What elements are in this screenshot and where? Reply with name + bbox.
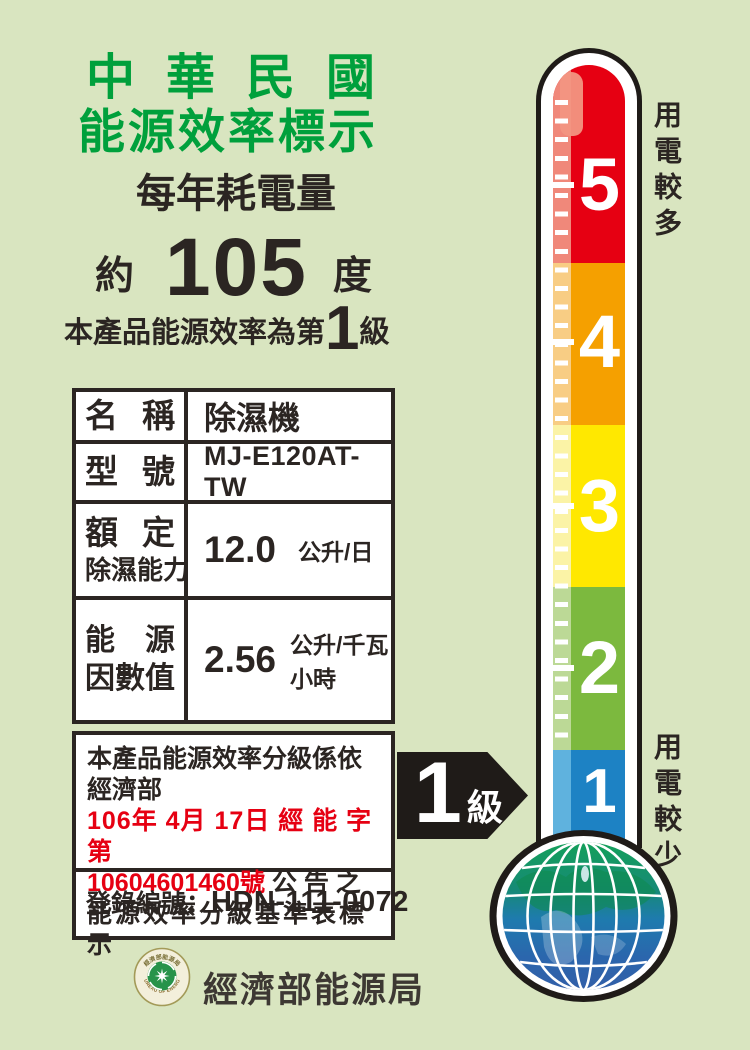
registration-label: 登錄編號： [86, 884, 211, 920]
label-char: 除 [85, 553, 111, 587]
row-name-label: 名 稱 [76, 392, 188, 440]
label-char: 號 [142, 452, 175, 492]
label-char: 型 [85, 452, 118, 492]
major-tick [546, 665, 574, 671]
label-char: 因 [85, 660, 115, 698]
row-capacity-label: 額 定 除 濕 能 力 [76, 504, 188, 596]
spec-table: 名 稱 除濕機 型 號 MJ-E120AT-TW 額 定 除 濕 [72, 388, 395, 724]
level-4-number: 4 [571, 307, 628, 377]
energy-factor-value: 2.56 [204, 639, 276, 681]
label-char: 數 [115, 660, 145, 698]
bureau-of-energy-logo-icon: 經濟部能源局 BUREAU OF ENERGY [133, 947, 191, 1007]
grade-value-inline: 1 [325, 304, 359, 354]
model-number: MJ-E120AT-TW [204, 441, 391, 503]
row-model-value: MJ-E120AT-TW [188, 444, 391, 500]
table-row-name: 名 稱 除濕機 [76, 392, 391, 444]
table-row-energy-factor: 能 源 因 數 值 2.56 公升/千瓦小時 [76, 600, 391, 720]
level-1-number: 1 [571, 763, 628, 821]
level-3-number: 3 [571, 471, 628, 541]
level-5-number: 5 [571, 150, 628, 220]
earth-globe-icon [486, 822, 681, 1010]
regulation-note-box: 本產品能源效率分級係依經濟部 106年 4月 17日 經 能 字 第 10604… [72, 731, 395, 940]
efficiency-grade-sentence: 本產品能源效率為第 1 級 [64, 304, 390, 354]
major-tick [546, 339, 574, 345]
row-model-label: 型 號 [76, 444, 188, 500]
label-char: 源 [145, 622, 175, 660]
consumption-value: 105 [165, 228, 308, 308]
note-line1: 本產品能源效率分級係依經濟部 [87, 744, 380, 806]
label-char: 濕 [111, 553, 137, 587]
energy-factor-unit: 公升/千瓦小時 [290, 626, 391, 694]
agency-name: 經濟部能源局 [203, 962, 425, 1013]
label-char: 稱 [142, 396, 175, 436]
more-power-label: 用電較多 [646, 100, 686, 244]
grade-sentence-prefix: 本產品能源效率為第 [64, 309, 325, 354]
regulation-note-text: 本產品能源效率分級係依經濟部 106年 4月 17日 經 能 字 第 10604… [76, 735, 391, 868]
label-title-line2: 能源效率標示 [78, 93, 378, 162]
row-energy-factor-value: 2.56 公升/千瓦小時 [188, 600, 391, 720]
product-name: 除濕機 [204, 393, 300, 439]
note-line2: 106年 4月 17日 經 能 字 第 [87, 806, 380, 868]
level-2-number: 2 [571, 633, 628, 703]
capacity-value: 12.0 [204, 529, 276, 571]
approx-label: 約 [95, 245, 134, 308]
row-energy-factor-label: 能 源 因 數 值 [76, 600, 188, 720]
capacity-unit: 公升/日 [298, 533, 373, 567]
label-char: 值 [145, 660, 175, 698]
thermometer-tick-marks [555, 100, 568, 750]
label-char: 能 [85, 622, 115, 660]
table-row-capacity: 額 定 除 濕 能 力 12.0 公升/日 [76, 504, 391, 600]
major-tick [546, 182, 574, 188]
energy-label: { "header": { "title_line1": "中華民國", "ti… [0, 0, 750, 1050]
table-row-model: 型 號 MJ-E120AT-TW [76, 444, 391, 504]
arrow-grade-number: 1 [414, 752, 462, 839]
label-char: 定 [142, 513, 175, 553]
registration-number: HDN-111-0072 [211, 886, 409, 919]
row-name-value: 除濕機 [188, 392, 391, 440]
label-char: 力 [163, 553, 189, 587]
label-char: 能 [137, 553, 163, 587]
annual-consumption-heading: 每年耗電量 [136, 161, 336, 219]
major-tick [546, 503, 574, 509]
row-capacity-value: 12.0 公升/日 [188, 504, 391, 596]
label-char: 名 [85, 396, 118, 436]
label-char: 額 [85, 513, 118, 553]
grade-sentence-suffix: 級 [360, 307, 390, 354]
